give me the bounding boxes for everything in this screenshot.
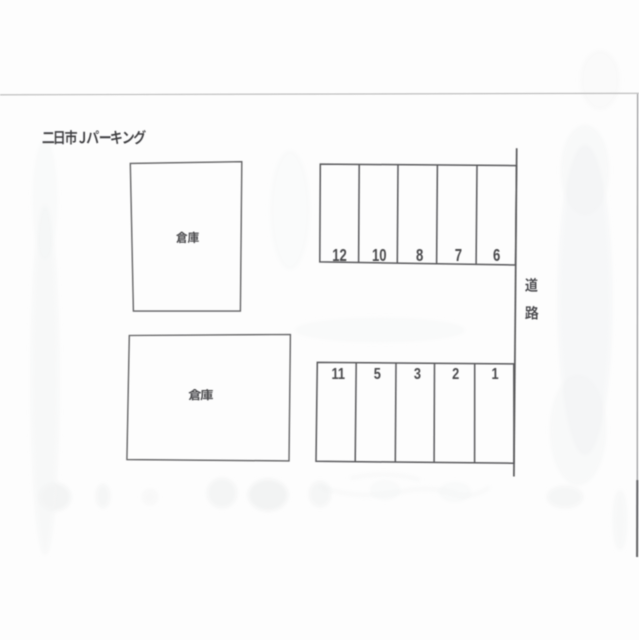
svg-text:6: 6: [493, 246, 501, 265]
svg-text:2: 2: [452, 366, 459, 384]
svg-text:12: 12: [332, 246, 347, 265]
svg-text:5: 5: [374, 366, 381, 384]
svg-text:10: 10: [372, 246, 387, 265]
svg-text:7: 7: [455, 246, 462, 265]
svg-text:11: 11: [331, 366, 345, 384]
svg-text:8: 8: [416, 246, 424, 265]
svg-text:1: 1: [492, 366, 499, 384]
svg-text:3: 3: [414, 366, 421, 384]
